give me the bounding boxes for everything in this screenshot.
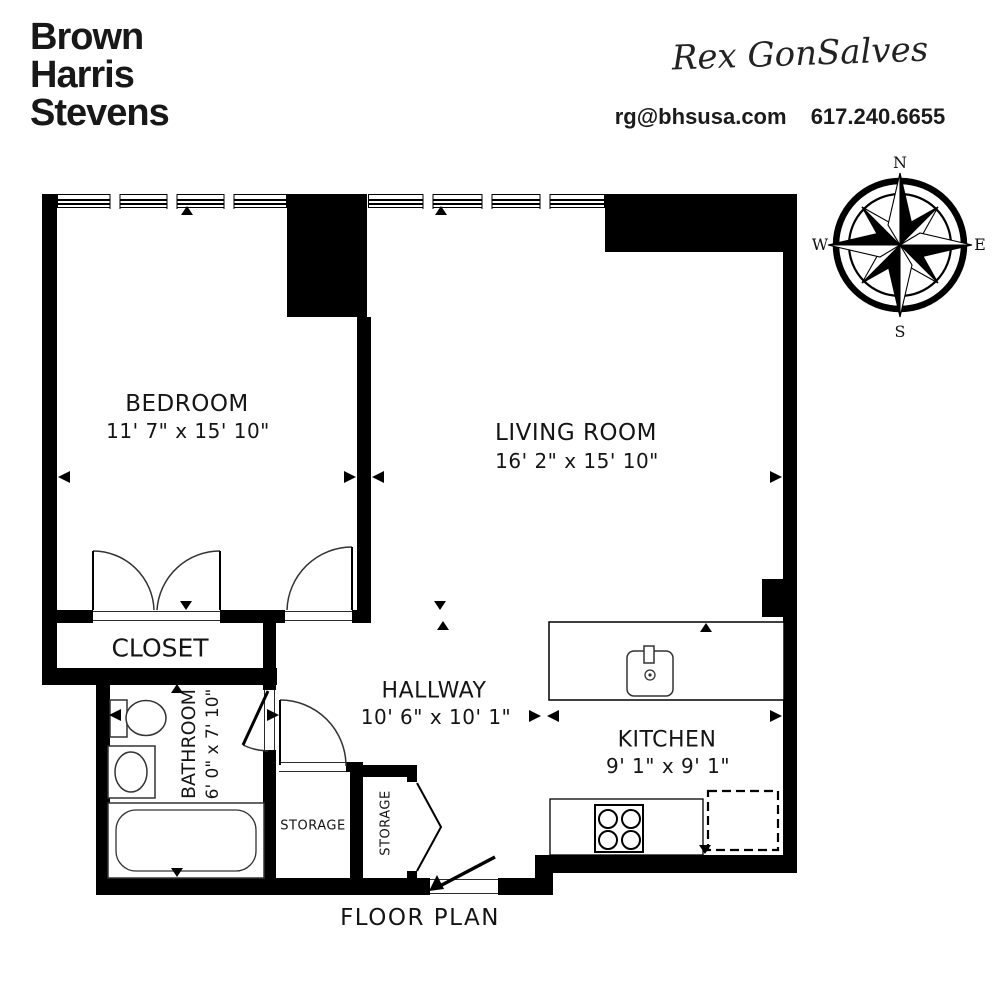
dim-arrow-livingroom-bottom xyxy=(434,601,446,610)
hallway-label: HALLWAY xyxy=(382,679,487,704)
kitchen-dims: 9' 1" x 9' 1" xyxy=(606,754,730,778)
kitchen-label: KITCHEN xyxy=(618,728,717,753)
bathroom-label-group: BATHROOM 6' 0" x 7' 10" xyxy=(177,689,225,800)
sink-faucet xyxy=(644,646,654,663)
floor-plan-page: Brown Harris Stevens Rex GonSalves rg@bh… xyxy=(0,0,1000,985)
dim-arrow-bedroom-bottom xyxy=(180,601,192,610)
stove xyxy=(595,805,643,852)
bedroom-door xyxy=(287,547,352,610)
bathtub xyxy=(108,803,264,878)
bathroom-dims: 6' 0" x 7' 10" xyxy=(201,689,225,800)
closet-double-door xyxy=(93,551,220,610)
dim-arrow-kitchen-left xyxy=(547,710,559,722)
dim-arrow-bedroom-right xyxy=(344,471,356,483)
livingroom-label: LIVING ROOM xyxy=(495,420,657,446)
storage2-label: STORAGE xyxy=(379,790,394,855)
bedroom-dims: 11' 7" x 15' 10" xyxy=(106,419,270,443)
dim-arrow-hallway-right xyxy=(529,710,541,722)
stove-burner xyxy=(622,810,640,828)
bathroom-vanity-sink xyxy=(108,746,155,798)
bedroom-label: BEDROOM xyxy=(125,391,249,417)
island-sink xyxy=(627,646,673,696)
dim-arrow-bedroom-left xyxy=(58,471,70,483)
dim-arrow-hallway-top xyxy=(437,621,449,630)
dim-arrow-kitchen-right xyxy=(770,710,782,722)
dim-arrow-bedroom-top xyxy=(181,206,193,215)
livingroom-dims: 16' 2" x 15' 10" xyxy=(495,449,659,473)
bathroom-door xyxy=(243,691,268,751)
storage-door xyxy=(280,700,346,766)
storage2-bifold-door xyxy=(417,783,441,871)
dim-arrow-livingroom-left xyxy=(372,471,384,483)
hallway-dims: 10' 6" x 10' 1" xyxy=(361,705,512,729)
stove-burner xyxy=(599,810,617,828)
closet-label: CLOSET xyxy=(111,634,208,663)
bathroom-label: BATHROOM xyxy=(177,689,201,800)
stove-burner xyxy=(622,831,640,849)
refrigerator xyxy=(708,791,778,850)
dim-arrow-bathroom-right xyxy=(267,709,279,721)
stove-burner xyxy=(599,831,617,849)
dim-arrow-livingroom-right xyxy=(770,471,782,483)
storage1-label: STORAGE xyxy=(280,819,345,834)
dim-arrow-livingroom-top xyxy=(435,206,447,215)
entry-door xyxy=(429,857,495,891)
plan-overlay xyxy=(0,0,1000,985)
floor-plan-title: FLOOR PLAN xyxy=(340,905,500,931)
